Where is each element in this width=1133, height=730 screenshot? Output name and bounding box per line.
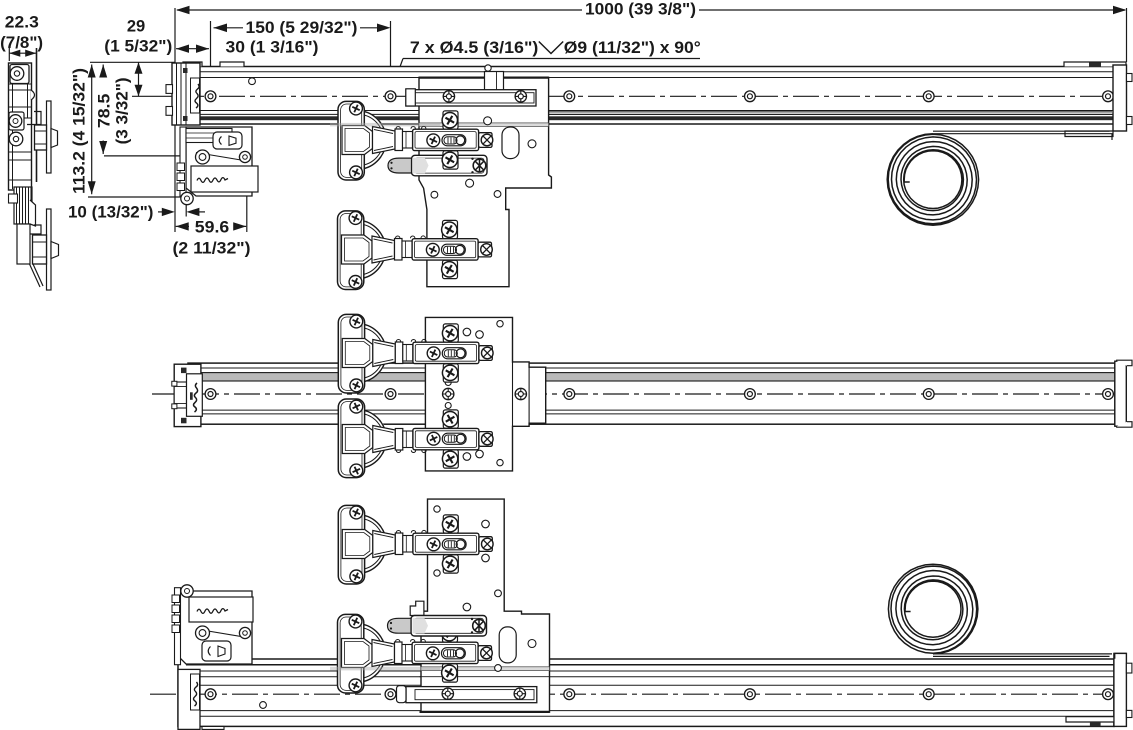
svg-text:22.3: 22.3 [5,13,39,31]
svg-text:7 x Ø4.5 (3/16"): 7 x Ø4.5 (3/16") [410,39,539,57]
svg-text:30 (1 3/16"): 30 (1 3/16") [226,38,319,56]
svg-text:59.6: 59.6 [195,218,229,236]
svg-text:10 (13/32"): 10 (13/32") [68,204,153,222]
svg-text:29: 29 [127,17,145,35]
svg-text:113.2 (4 15/32"): 113.2 (4 15/32") [70,68,88,194]
svg-text:1000 (39 3/8"): 1000 (39 3/8") [585,1,696,19]
svg-text:(1 5/32"): (1 5/32") [104,38,172,56]
svg-text:150 (5 29/32"): 150 (5 29/32") [246,19,358,37]
svg-text:Ø9 (11/32") x 90°: Ø9 (11/32") x 90° [564,39,701,57]
svg-text:(2 11/32"): (2 11/32") [173,239,251,257]
svg-text:78.5: 78.5 [96,94,114,128]
svg-text:(3 3/32"): (3 3/32") [114,77,132,144]
